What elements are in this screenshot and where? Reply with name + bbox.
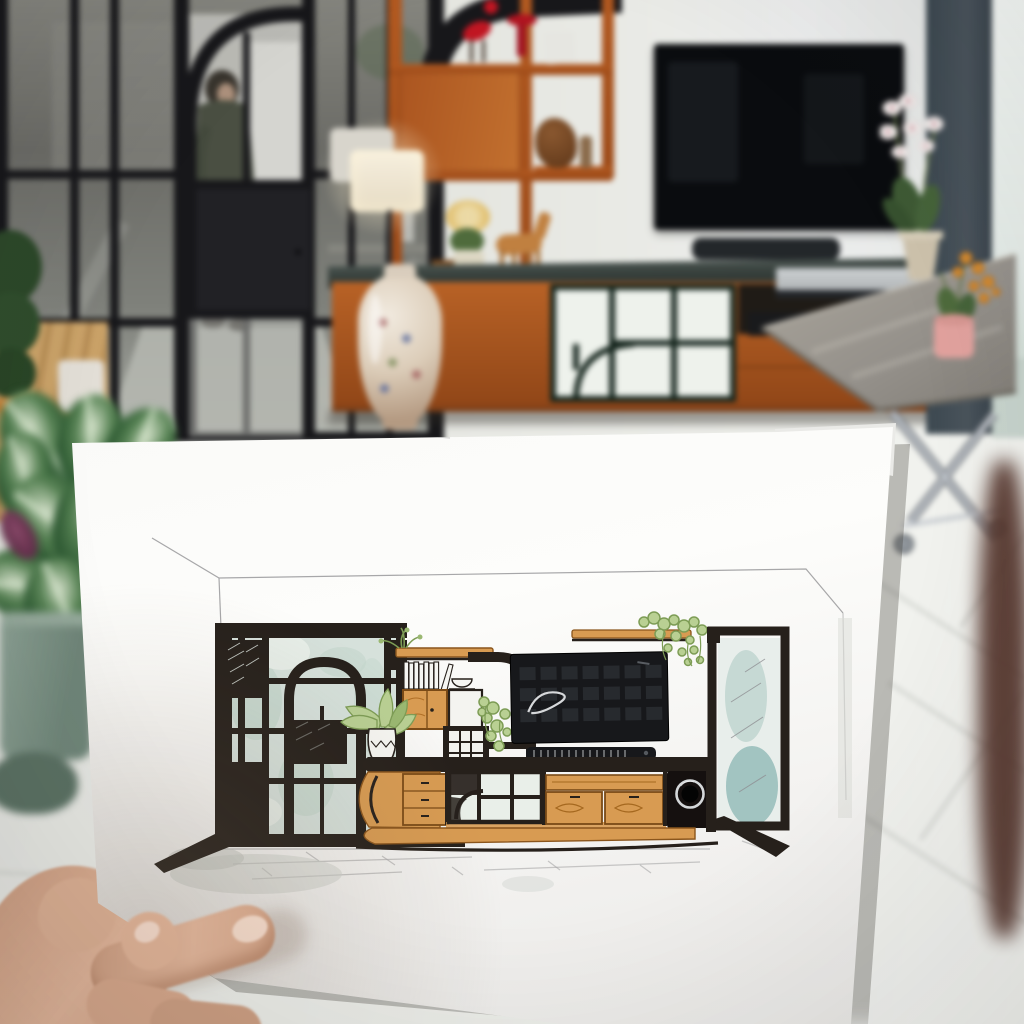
hand-front xyxy=(0,0,1024,1024)
curled-finger xyxy=(148,996,265,1024)
photo xyxy=(0,0,1024,1024)
